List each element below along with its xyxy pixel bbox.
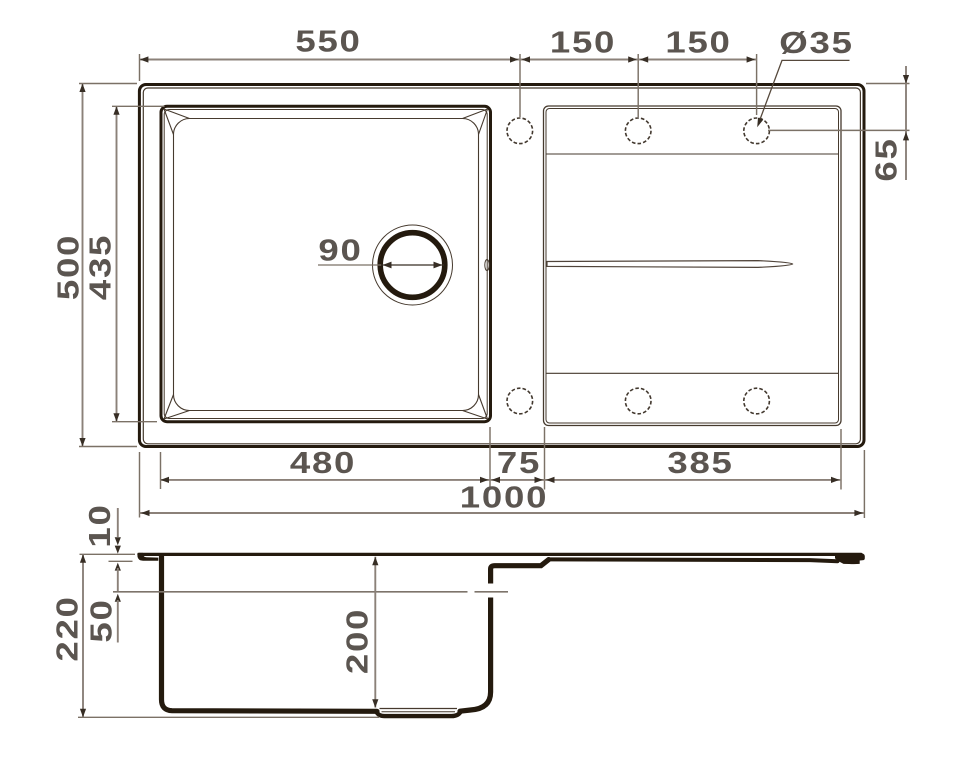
svg-text:65: 65 (869, 137, 904, 181)
svg-text:220: 220 (50, 595, 85, 661)
svg-text:10: 10 (83, 503, 118, 547)
svg-text:150: 150 (550, 25, 616, 60)
svg-text:480: 480 (290, 446, 356, 481)
svg-text:150: 150 (665, 25, 731, 60)
svg-text:Ø35: Ø35 (779, 26, 853, 61)
svg-text:50: 50 (84, 598, 119, 642)
svg-text:90: 90 (318, 233, 362, 268)
svg-text:1000: 1000 (460, 480, 548, 515)
svg-text:200: 200 (340, 608, 375, 674)
svg-text:500: 500 (51, 234, 86, 300)
svg-text:75: 75 (497, 446, 541, 481)
svg-text:385: 385 (667, 446, 733, 481)
svg-text:550: 550 (295, 24, 361, 59)
svg-text:435: 435 (83, 234, 118, 300)
